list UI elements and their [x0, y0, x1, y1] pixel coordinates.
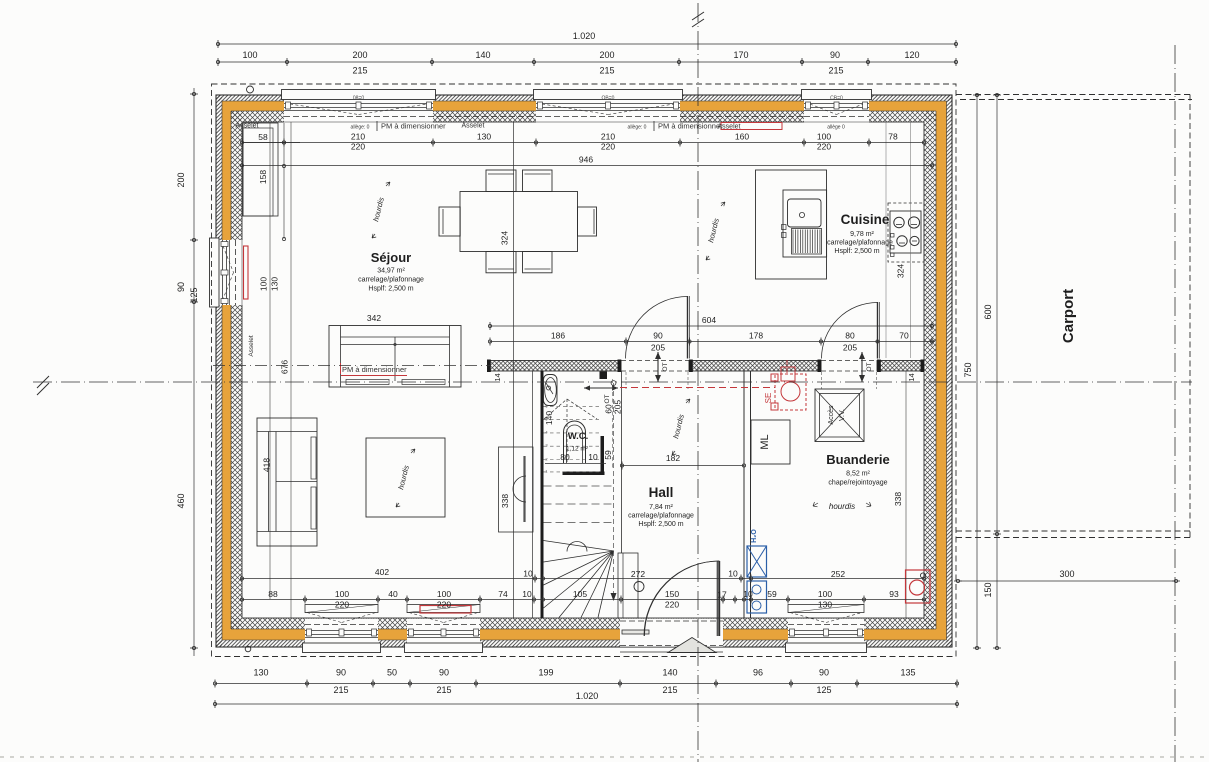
- svg-text:182: 182: [666, 453, 680, 463]
- svg-text:90: 90: [819, 668, 829, 678]
- svg-text:96: 96: [753, 668, 763, 678]
- svg-text:90: 90: [439, 668, 449, 678]
- svg-text:140: 140: [475, 50, 490, 60]
- svg-text:V.V.: V.V.: [839, 409, 846, 421]
- svg-text:10: 10: [743, 589, 753, 599]
- svg-text:200: 200: [176, 172, 186, 187]
- svg-text:252: 252: [831, 569, 845, 579]
- svg-text:200: 200: [599, 50, 614, 60]
- svg-text:600: 600: [983, 304, 993, 319]
- svg-text:40: 40: [388, 589, 398, 599]
- svg-text:OT: OT: [866, 362, 873, 371]
- svg-text:215: 215: [352, 66, 367, 76]
- svg-text:93: 93: [889, 589, 899, 599]
- svg-text:carrelage/plafonnage: carrelage/plafonnage: [827, 240, 893, 247]
- svg-text:allège 0: allège 0: [827, 125, 845, 131]
- svg-text:158: 158: [258, 170, 268, 184]
- svg-text:220: 220: [601, 142, 615, 152]
- svg-text:125: 125: [189, 287, 199, 302]
- svg-text:Hsplf: 2,500 m: Hsplf: 2,500 m: [638, 521, 683, 528]
- svg-text:1.020: 1.020: [573, 31, 596, 41]
- svg-text:210: 210: [601, 132, 615, 142]
- svg-text:120: 120: [904, 50, 919, 60]
- svg-text:220: 220: [437, 600, 451, 610]
- svg-text:10: 10: [588, 452, 598, 462]
- svg-text:338: 338: [893, 492, 903, 506]
- svg-text:215: 215: [828, 66, 843, 76]
- svg-text:200: 200: [352, 50, 367, 60]
- svg-text:7,84 m²: 7,84 m²: [649, 504, 673, 511]
- svg-text:Asselet: Asselet: [236, 123, 259, 130]
- svg-text:H₂O: H₂O: [751, 529, 758, 543]
- svg-text:14: 14: [907, 373, 916, 381]
- svg-text:220: 220: [351, 142, 365, 152]
- svg-text:Buanderie: Buanderie: [826, 452, 890, 467]
- svg-text:Hall: Hall: [649, 485, 674, 500]
- svg-text:SE: SE: [764, 393, 773, 404]
- svg-text:205: 205: [613, 400, 623, 414]
- svg-text:10: 10: [728, 569, 738, 579]
- svg-text:Asselet: Asselet: [248, 335, 255, 357]
- svg-text:402: 402: [375, 567, 389, 577]
- svg-text:170: 170: [733, 50, 748, 60]
- svg-text:74: 74: [498, 589, 508, 599]
- svg-text:80: 80: [560, 452, 570, 462]
- svg-text:150: 150: [983, 582, 993, 597]
- svg-text:OT: OT: [662, 362, 669, 371]
- svg-text:allège: 0: allège: 0: [628, 125, 647, 131]
- svg-text:70: 70: [899, 331, 909, 341]
- svg-text:460: 460: [176, 493, 186, 508]
- svg-text:220: 220: [335, 600, 349, 610]
- svg-text:100: 100: [817, 132, 831, 142]
- svg-text:carrelage/plafonnage: carrelage/plafonnage: [358, 277, 424, 284]
- svg-text:178: 178: [749, 331, 763, 341]
- svg-text:215: 215: [436, 685, 451, 695]
- svg-text:676: 676: [280, 360, 290, 374]
- svg-text:272: 272: [631, 569, 645, 579]
- svg-text:150: 150: [665, 589, 679, 599]
- svg-text:324: 324: [896, 264, 906, 278]
- svg-text:Asselet: Asselet: [462, 123, 485, 130]
- svg-text:342: 342: [367, 313, 381, 323]
- svg-text:90: 90: [830, 50, 840, 60]
- svg-text:PM à dimensionner: PM à dimensionner: [342, 365, 407, 374]
- svg-text:90: 90: [336, 668, 346, 678]
- svg-text:205: 205: [843, 343, 857, 353]
- svg-text:50: 50: [387, 668, 397, 678]
- svg-text:PM à dimensionner: PM à dimensionner: [658, 122, 723, 131]
- svg-text:100: 100: [242, 50, 257, 60]
- svg-text:215: 215: [333, 685, 348, 695]
- svg-text:8,52 m²: 8,52 m²: [846, 471, 870, 478]
- svg-text:199: 199: [538, 668, 553, 678]
- svg-text:chape/rejointoyage: chape/rejointoyage: [828, 480, 887, 487]
- svg-text:Carport: Carport: [1060, 289, 1077, 343]
- svg-text:604: 604: [702, 315, 716, 325]
- svg-text:W.C.: W.C.: [568, 431, 589, 442]
- svg-text:946: 946: [579, 155, 593, 165]
- svg-text:215: 215: [662, 685, 677, 695]
- svg-text:80: 80: [845, 331, 855, 341]
- svg-text:14: 14: [493, 373, 502, 381]
- svg-text:100: 100: [259, 277, 269, 291]
- svg-text:allège: 0: allège: 0: [351, 125, 370, 131]
- svg-text:08=0: 08=0: [353, 96, 364, 102]
- svg-text:125: 125: [816, 685, 831, 695]
- svg-text:10: 10: [522, 589, 532, 599]
- svg-text:Cuisine: Cuisine: [841, 212, 890, 227]
- svg-text:PM à dimensionner: PM à dimensionner: [381, 122, 446, 131]
- svg-text:140: 140: [544, 411, 554, 425]
- svg-text:90: 90: [176, 282, 186, 292]
- svg-text:OB=0: OB=0: [602, 96, 615, 102]
- svg-text:Hsplf: 2,500 m: Hsplf: 2,500 m: [368, 286, 413, 293]
- svg-text:160: 160: [735, 132, 749, 142]
- svg-text:186: 186: [551, 331, 565, 341]
- svg-text:300: 300: [1059, 569, 1074, 579]
- svg-text:100: 100: [335, 589, 349, 599]
- svg-text:130: 130: [270, 277, 280, 291]
- svg-text:hourdis: hourdis: [829, 502, 855, 511]
- svg-text:Accès: Accès: [828, 405, 835, 425]
- svg-text:750: 750: [963, 362, 973, 377]
- svg-text:338: 338: [500, 494, 510, 508]
- svg-text:CB=0: CB=0: [830, 96, 843, 102]
- svg-text:210: 210: [351, 132, 365, 142]
- svg-text:88: 88: [268, 589, 278, 599]
- svg-text:34,97 m²: 34,97 m²: [377, 268, 405, 275]
- svg-text:58: 58: [258, 132, 268, 142]
- svg-text:135: 135: [900, 668, 915, 678]
- svg-text:100: 100: [437, 589, 451, 599]
- svg-text:215: 215: [599, 66, 614, 76]
- svg-text:10: 10: [523, 569, 533, 579]
- svg-text:Séjour: Séjour: [371, 250, 411, 265]
- svg-text:1.020: 1.020: [576, 691, 599, 701]
- svg-text:130: 130: [818, 600, 832, 610]
- svg-text:130: 130: [253, 668, 268, 678]
- svg-text:220: 220: [665, 600, 679, 610]
- svg-text:17: 17: [717, 590, 727, 600]
- svg-text:90: 90: [653, 331, 663, 341]
- svg-text:205: 205: [651, 343, 665, 353]
- svg-text:324: 324: [500, 231, 510, 245]
- svg-text:220: 220: [817, 142, 831, 152]
- svg-text:9,78 m²: 9,78 m²: [850, 231, 874, 238]
- svg-text:105: 105: [573, 589, 587, 599]
- svg-text:carrelage/plafonnage: carrelage/plafonnage: [628, 513, 694, 520]
- svg-text:ML: ML: [759, 434, 771, 449]
- svg-text:59: 59: [767, 589, 777, 599]
- svg-text:78: 78: [888, 132, 898, 142]
- svg-text:59: 59: [603, 450, 613, 460]
- svg-text:OT: OT: [604, 394, 611, 403]
- svg-text:Hsplf: 2,500 m: Hsplf: 2,500 m: [834, 248, 879, 255]
- svg-text:100: 100: [818, 589, 832, 599]
- svg-text:140: 140: [662, 668, 677, 678]
- svg-text:130: 130: [477, 132, 491, 142]
